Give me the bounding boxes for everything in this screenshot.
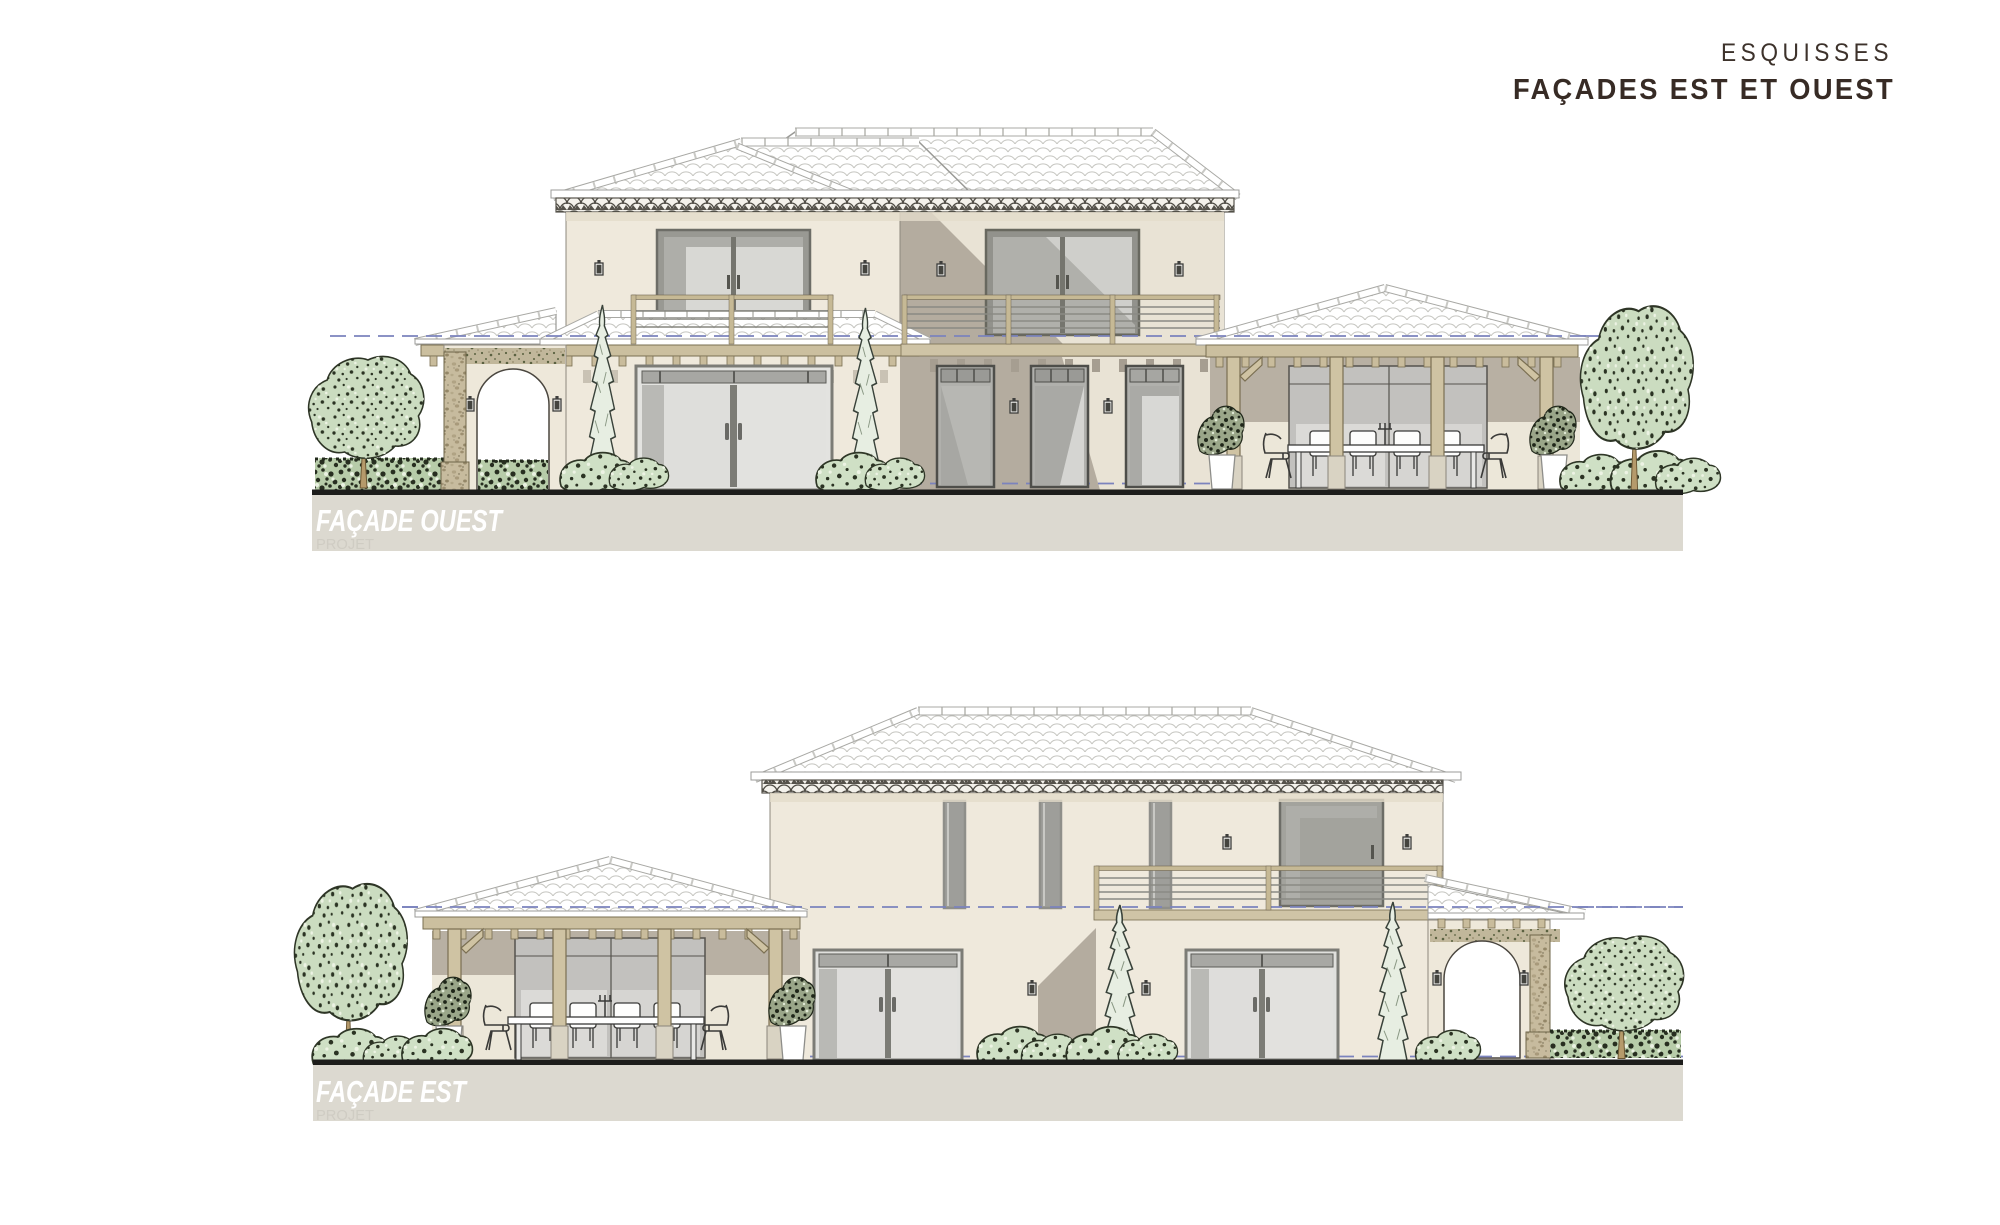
svg-text:PROJET: PROJET	[316, 536, 374, 553]
svg-text:FAÇADES EST ET OUEST: FAÇADES EST ET OUEST	[1513, 74, 1895, 106]
svg-text:FAÇADE OUEST: FAÇADE OUEST	[316, 503, 504, 538]
svg-text:PROJET: PROJET	[316, 1107, 374, 1124]
svg-text:FAÇADE EST: FAÇADE EST	[316, 1074, 468, 1109]
svg-text:ESQUISSES: ESQUISSES	[1721, 39, 1893, 67]
